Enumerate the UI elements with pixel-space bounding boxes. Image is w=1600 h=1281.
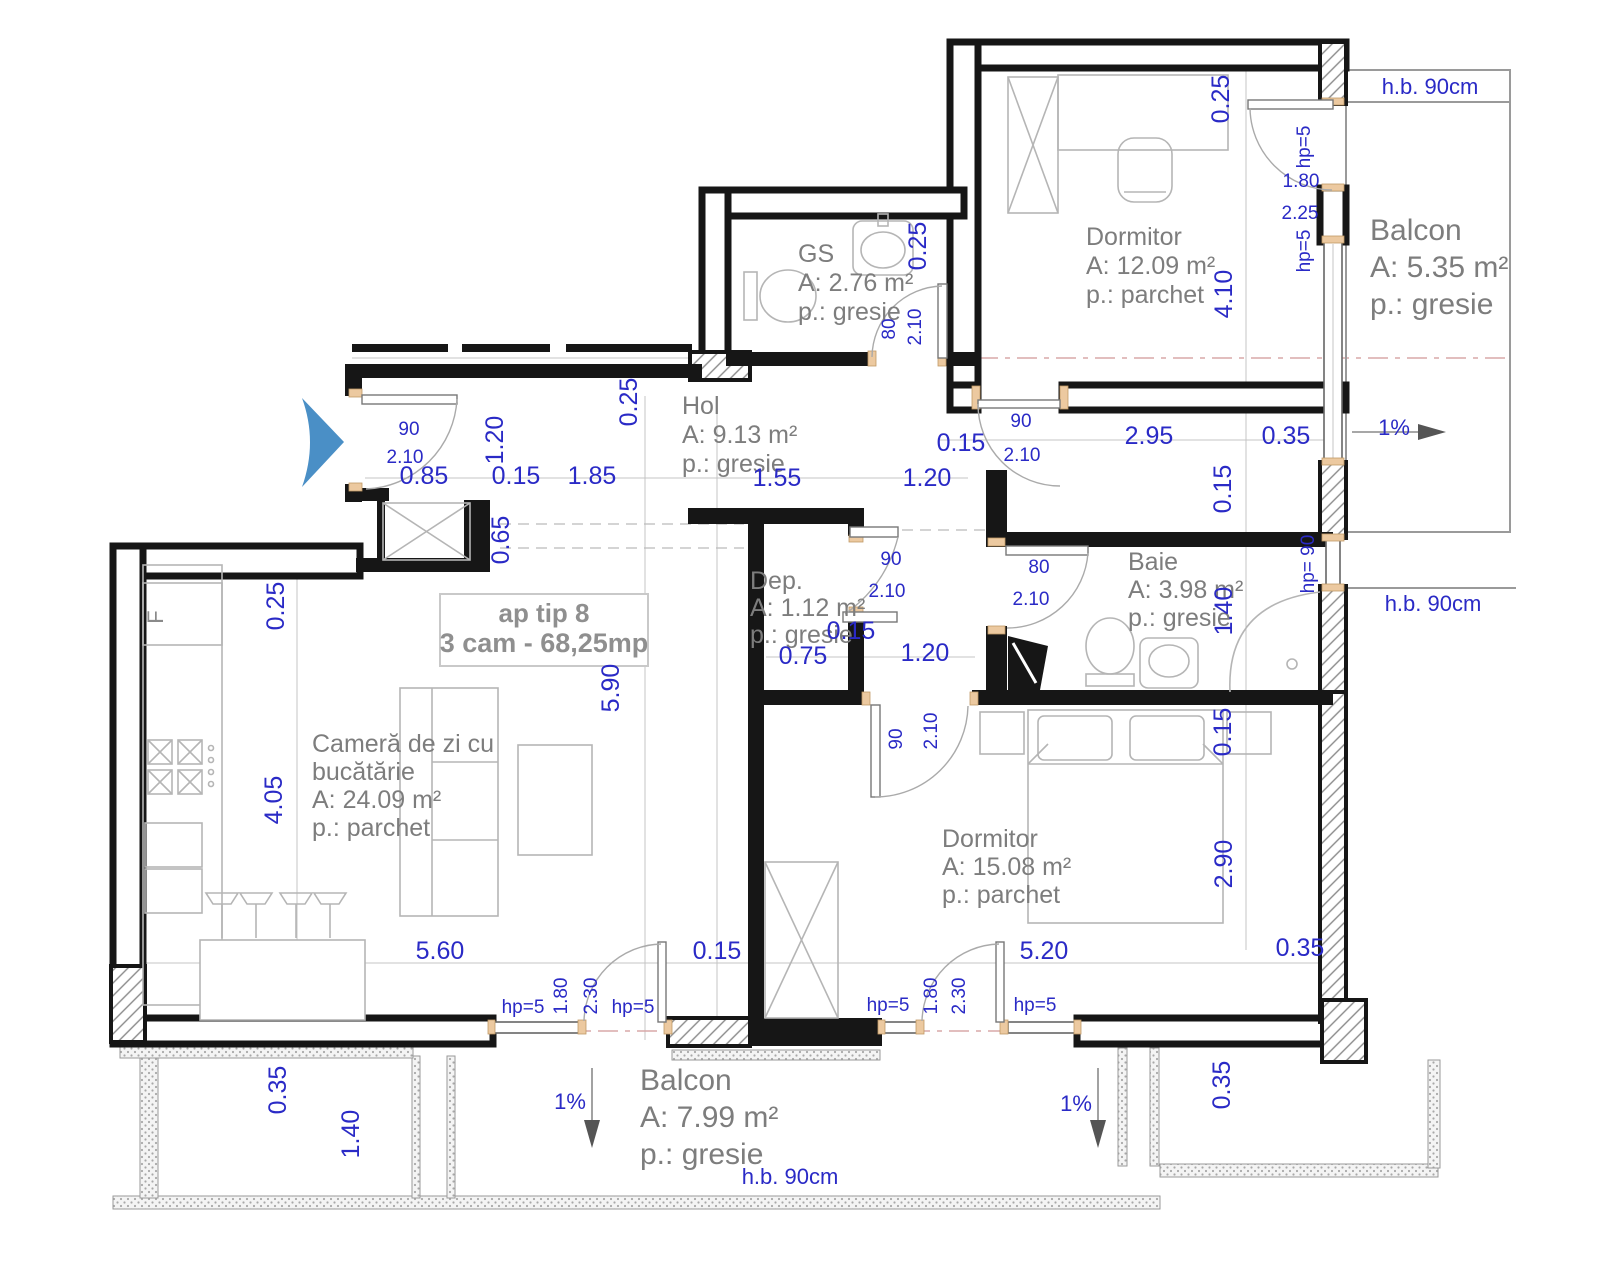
dormitor1-furniture — [1008, 75, 1228, 213]
door-size-label: 90 — [880, 549, 901, 570]
room-label-baie: Baie — [1128, 548, 1178, 576]
plan-title-box: ap tip 8 3 cam - 68,25mp — [440, 594, 649, 666]
dimension-label: 1.55 — [753, 464, 802, 492]
room-label-dormitor-1: p.: parchet — [1086, 281, 1204, 309]
dimension-label: 0.35 — [264, 1066, 292, 1115]
room-label-balcon-2: Balcon — [640, 1064, 732, 1097]
dimension-label: 0.35 — [1262, 422, 1311, 450]
toilet-bowl — [1086, 618, 1134, 674]
dimension-label: 0.15 — [693, 937, 742, 965]
note-label: h.b. 90cm — [1385, 591, 1482, 616]
slope-arrow-balcony-right-icon — [1090, 1068, 1106, 1148]
note-label: F — [143, 610, 168, 623]
dimension-label: 2.90 — [1210, 840, 1238, 889]
dimension-label: 5.90 — [597, 664, 625, 713]
window-height-label: 2.25 — [1282, 203, 1319, 224]
room-label-balcon-1: p.: gresie — [1370, 288, 1493, 321]
room-label-hol: A: 9.13 m² — [682, 421, 797, 449]
dimension-label: 1.20 — [903, 464, 952, 492]
window-height-label: hp= 90 — [1298, 535, 1319, 594]
dimension-label: 4.05 — [260, 776, 288, 825]
room-label-camera-de-zi: A: 24.09 m² — [312, 786, 441, 814]
dormitor2-door — [871, 705, 968, 797]
room-label-dormitor-1: Dormitor — [1086, 223, 1182, 251]
window-height-label: 2.30 — [581, 978, 602, 1015]
slope-arrow-balcony-left-icon — [584, 1068, 600, 1148]
floor-plan-page: ap tip 8 3 cam - 68,25mp GSA: 2.76 m²p.:… — [0, 0, 1600, 1281]
note-label: 1% — [554, 1089, 586, 1114]
room-label-camera-de-zi: bucătărie — [312, 758, 415, 786]
window-height-label: hp=5 — [1014, 995, 1057, 1016]
toilet-tank — [1086, 674, 1134, 686]
dimension-label: 0.15 — [827, 617, 876, 645]
note-label: 1% — [1378, 415, 1410, 440]
dimension-label: 5.60 — [416, 937, 465, 965]
door-size-label: 2.10 — [1004, 445, 1041, 466]
door-size-label: 2.10 — [905, 309, 926, 346]
door-size-label: 2.10 — [921, 713, 942, 750]
window-height-label: 1.80 — [921, 978, 942, 1015]
door-size-label: 80 — [1028, 557, 1049, 578]
door-size-label: 2.10 — [869, 581, 906, 602]
dimension-label: 4.10 — [1210, 270, 1238, 319]
door-size-label: 90 — [1010, 411, 1031, 432]
room-label-balcon-1: Balcon — [1370, 214, 1462, 247]
dimension-label: 5.20 — [1020, 937, 1069, 965]
shower — [1230, 592, 1320, 692]
dimension-label: 0.65 — [487, 516, 515, 565]
dimension-label: 1.85 — [568, 462, 617, 490]
room-label-hol: Hol — [682, 392, 720, 420]
dimension-label: 0.35 — [1276, 934, 1325, 962]
bar-stools — [206, 893, 346, 938]
room-label-balcon-1: A: 5.35 m² — [1370, 251, 1508, 284]
dimension-label: 0.15 — [1209, 708, 1237, 757]
room-label-dormitor-2: p.: parchet — [942, 881, 1060, 909]
room-label-gs: A: 2.76 m² — [798, 269, 913, 297]
plan-subtitle: 3 cam - 68,25mp — [440, 628, 649, 658]
window-height-label: 2.30 — [949, 978, 970, 1015]
toilet-tank — [744, 272, 757, 320]
window-height-label: hp=5 — [612, 997, 655, 1018]
dimension-label: 1.40 — [337, 1110, 365, 1159]
window-height-label: 1.80 — [1283, 171, 1320, 192]
window-height-label: 1.80 — [551, 978, 572, 1015]
door-size-label: 90 — [398, 419, 419, 440]
room-label-camera-de-zi: p.: parchet — [312, 814, 430, 842]
dimension-label: 0.15 — [1209, 465, 1237, 514]
room-label-dormitor-2: Dormitor — [942, 825, 1038, 853]
dimension-label: 1.20 — [901, 639, 950, 667]
dimension-label: 0.75 — [779, 642, 828, 670]
window-height-label: hp=5 — [1294, 230, 1315, 273]
room-label-dormitor-1: A: 12.09 m² — [1086, 252, 1215, 280]
door-size-label: 90 — [886, 728, 907, 749]
note-label: h.b. 90cm — [1382, 74, 1479, 99]
room-label-dormitor-2: A: 15.08 m² — [942, 853, 1071, 881]
dimension-label: 0.25 — [904, 222, 932, 271]
dimension-label: 0.35 — [1208, 1061, 1236, 1110]
door-size-label: 2.10 — [1013, 589, 1050, 610]
dimension-label: 2.95 — [1125, 422, 1174, 450]
plan-title: ap tip 8 — [498, 598, 589, 628]
room-label-gs: GS — [798, 240, 834, 268]
dimension-label: 0.15 — [937, 429, 986, 457]
entrance-arrow-icon — [302, 398, 344, 487]
dimension-label: 0.25 — [615, 378, 643, 427]
dimension-label: 0.25 — [1207, 75, 1235, 124]
note-label: 1% — [1060, 1091, 1092, 1116]
dimension-label: 1.20 — [481, 416, 509, 465]
door-size-label: 2.10 — [387, 447, 424, 468]
room-label-camera-de-zi: Cameră de zi cu — [312, 730, 494, 758]
coffee-table — [518, 745, 592, 855]
window-height-label: hp=5 — [867, 995, 910, 1016]
window-height-label: hp=5 — [502, 997, 545, 1018]
entrance-closet — [383, 503, 470, 560]
window-height-label: hp=5 — [1294, 126, 1315, 169]
room-label-balcon-2: A: 7.99 m² — [640, 1101, 778, 1134]
dimension-label: 0.15 — [492, 462, 541, 490]
dimension-label: 0.25 — [262, 582, 290, 631]
floor-plan-drawing: ap tip 8 3 cam - 68,25mp GSA: 2.76 m²p.:… — [0, 0, 1600, 1281]
door-size-label: 80 — [879, 318, 900, 339]
room-label-dep: Dep. — [750, 567, 803, 595]
dimension-label: 1.40 — [1210, 587, 1238, 636]
note-label: h.b. 90cm — [742, 1164, 839, 1189]
